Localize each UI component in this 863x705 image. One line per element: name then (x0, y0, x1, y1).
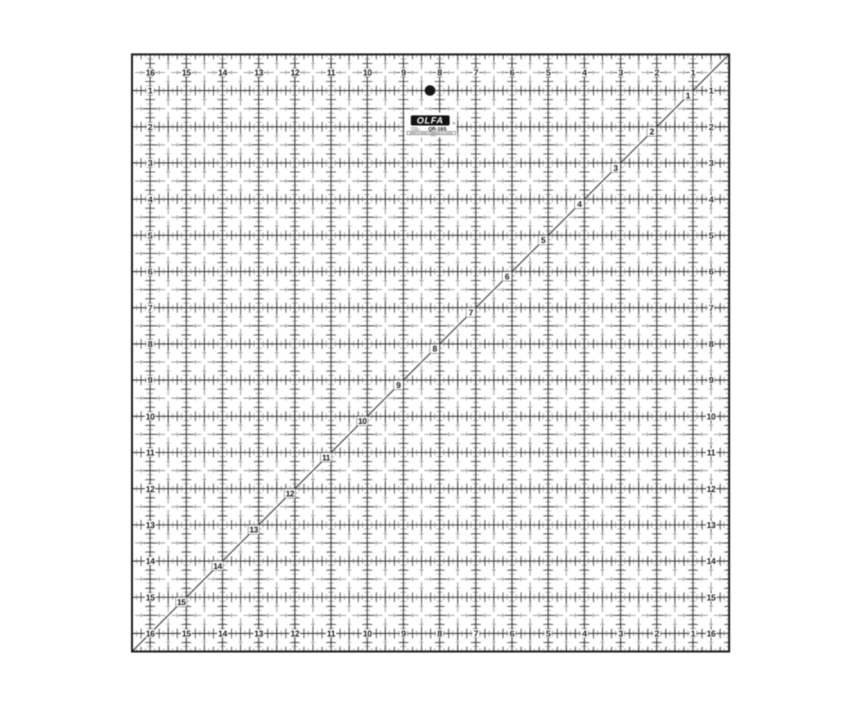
svg-text:9: 9 (401, 629, 406, 639)
svg-text:15: 15 (182, 629, 191, 639)
svg-text:8: 8 (709, 339, 714, 349)
svg-text:7: 7 (469, 308, 474, 318)
svg-text:5: 5 (546, 68, 551, 78)
svg-text:10: 10 (358, 416, 367, 426)
svg-text:14: 14 (707, 556, 716, 566)
svg-text:7: 7 (474, 68, 479, 78)
svg-text:10: 10 (146, 411, 155, 421)
svg-text:12: 12 (146, 484, 155, 494)
svg-text:11: 11 (322, 452, 331, 462)
svg-text:3: 3 (618, 68, 623, 78)
svg-text:10: 10 (707, 411, 716, 421)
svg-text:13: 13 (146, 520, 155, 530)
svg-text:5: 5 (541, 235, 546, 245)
svg-text:3: 3 (148, 158, 153, 168)
svg-text:2: 2 (650, 127, 655, 137)
svg-text:11: 11 (327, 68, 336, 78)
svg-text:14: 14 (213, 561, 222, 571)
svg-text:12: 12 (707, 484, 716, 494)
svg-text:9: 9 (709, 375, 714, 385)
svg-text:8: 8 (148, 339, 153, 349)
svg-text:3: 3 (613, 163, 618, 173)
svg-text:NUMBER: NUMBER (411, 128, 421, 131)
svg-text:11: 11 (707, 448, 716, 458)
svg-text:9: 9 (148, 375, 153, 385)
svg-text:9: 9 (396, 380, 401, 390)
svg-text:15: 15 (177, 597, 186, 607)
svg-text:2: 2 (148, 122, 153, 132)
svg-text:2: 2 (709, 122, 714, 132)
svg-text:8: 8 (437, 629, 442, 639)
svg-text:8: 8 (432, 344, 437, 354)
svg-text:12: 12 (290, 629, 299, 639)
svg-text:8: 8 (437, 68, 442, 78)
svg-text:12: 12 (290, 68, 299, 78)
svg-text:6: 6 (505, 271, 510, 281)
svg-text:6: 6 (510, 629, 515, 639)
svg-text:5: 5 (546, 629, 551, 639)
svg-text:13: 13 (707, 520, 716, 530)
svg-text:2: 2 (655, 68, 660, 78)
svg-text:2: 2 (655, 629, 660, 639)
svg-text:1: 1 (686, 90, 691, 100)
svg-text:16: 16 (707, 629, 716, 639)
svg-text:4: 4 (577, 199, 582, 209)
svg-text:6: 6 (510, 68, 515, 78)
svg-text:14: 14 (218, 68, 227, 78)
svg-text:OLFA: OLFA (417, 116, 444, 126)
svg-text:14: 14 (146, 556, 155, 566)
svg-text:7: 7 (148, 303, 153, 313)
svg-text:16: 16 (146, 68, 155, 78)
svg-text:3: 3 (709, 158, 714, 168)
svg-text:13: 13 (254, 68, 263, 78)
svg-text:®: ® (453, 122, 456, 126)
svg-text:3: 3 (618, 629, 623, 639)
svg-text:14: 14 (218, 629, 227, 639)
svg-text:1: 1 (148, 86, 153, 96)
svg-text:JAPAN: JAPAN (430, 135, 437, 138)
svg-text:1: 1 (709, 86, 714, 96)
svg-text:4: 4 (582, 68, 587, 78)
svg-text:4: 4 (709, 194, 714, 204)
svg-text:10: 10 (363, 68, 372, 78)
svg-text:7: 7 (474, 629, 479, 639)
svg-text:15: 15 (182, 68, 191, 78)
svg-text:MADE IN JAPAN / FABRIQUE AU JA: MADE IN JAPAN / FABRIQUE AU JAPON (410, 132, 453, 135)
svg-text:9: 9 (401, 68, 406, 78)
svg-text:15: 15 (146, 592, 155, 602)
svg-text:16: 16 (146, 629, 155, 639)
svg-text:4: 4 (582, 629, 587, 639)
svg-text:13: 13 (249, 525, 258, 535)
svg-text:4: 4 (148, 194, 153, 204)
svg-text:1: 1 (691, 68, 696, 78)
svg-text:10: 10 (363, 629, 372, 639)
svg-text:13: 13 (254, 629, 263, 639)
svg-text:1: 1 (691, 629, 696, 639)
svg-text:11: 11 (146, 448, 155, 458)
svg-text:7: 7 (709, 303, 714, 313)
svg-text:6: 6 (148, 267, 153, 277)
svg-text:5: 5 (148, 230, 153, 240)
svg-text:11: 11 (327, 629, 336, 639)
svg-text:15: 15 (707, 592, 716, 602)
svg-text:5: 5 (709, 230, 714, 240)
svg-text:12: 12 (286, 488, 295, 498)
svg-text:6: 6 (709, 267, 714, 277)
